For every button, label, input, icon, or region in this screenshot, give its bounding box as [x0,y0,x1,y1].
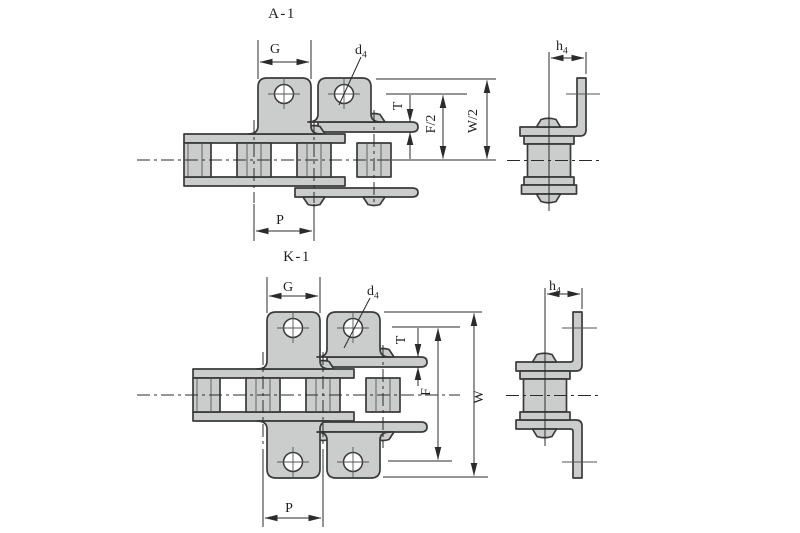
a1-end-view: h4 [507,39,600,211]
k1-side-view [137,312,460,478]
k1-pin-link-plate-top [327,357,427,367]
a1-dim-g-label: G [270,42,280,57]
k1-title: K-1 [283,249,311,265]
a1-pin-link-plate-top [318,122,418,132]
k1-assembly: G d4 T F W P [137,249,598,527]
a1-dim-p-extensions [254,204,314,241]
k1-dim-p-label: P [285,501,293,516]
k1-dim-g-label: G [283,280,293,295]
k1-inner-plate-top [193,369,354,378]
k1-dim-d4-label: d4 [367,284,379,302]
a1-inner-plate-top [184,134,345,143]
a1-dim-g-extensions [258,40,311,79]
chain-attachment-drawing: G d4 T F/2 W/2 P [0,0,800,533]
a1-assembly: G d4 T F/2 W/2 P [137,6,600,241]
a1-dim-w2-label: W/2 [466,109,481,133]
k1-dim-w-label: W [472,390,487,404]
k1-end-view: h4 [506,279,598,478]
k1-dim-h4-label: h4 [549,279,561,297]
a1-dim-p-label: P [276,213,284,228]
a1-right-extension-lines [376,79,496,94]
k1-dim-t-label: T [394,335,409,344]
a1-inner-plate-bottom [184,177,345,186]
a1-side-view [137,78,496,206]
a1-title: A-1 [268,6,296,22]
k1-dim-g-extensions [267,277,320,313]
a1-dim-t-label: T [391,101,406,110]
a1-dim-f2-label: F/2 [424,115,439,134]
technical-drawing-page: G d4 T F/2 W/2 P [0,0,800,533]
k1-inner-plate-bottom [193,412,354,421]
k1-dim-f-label: F [419,388,434,396]
a1-dim-h4-label: h4 [556,39,568,57]
a1-pin-link-plate-bottom [295,188,418,197]
